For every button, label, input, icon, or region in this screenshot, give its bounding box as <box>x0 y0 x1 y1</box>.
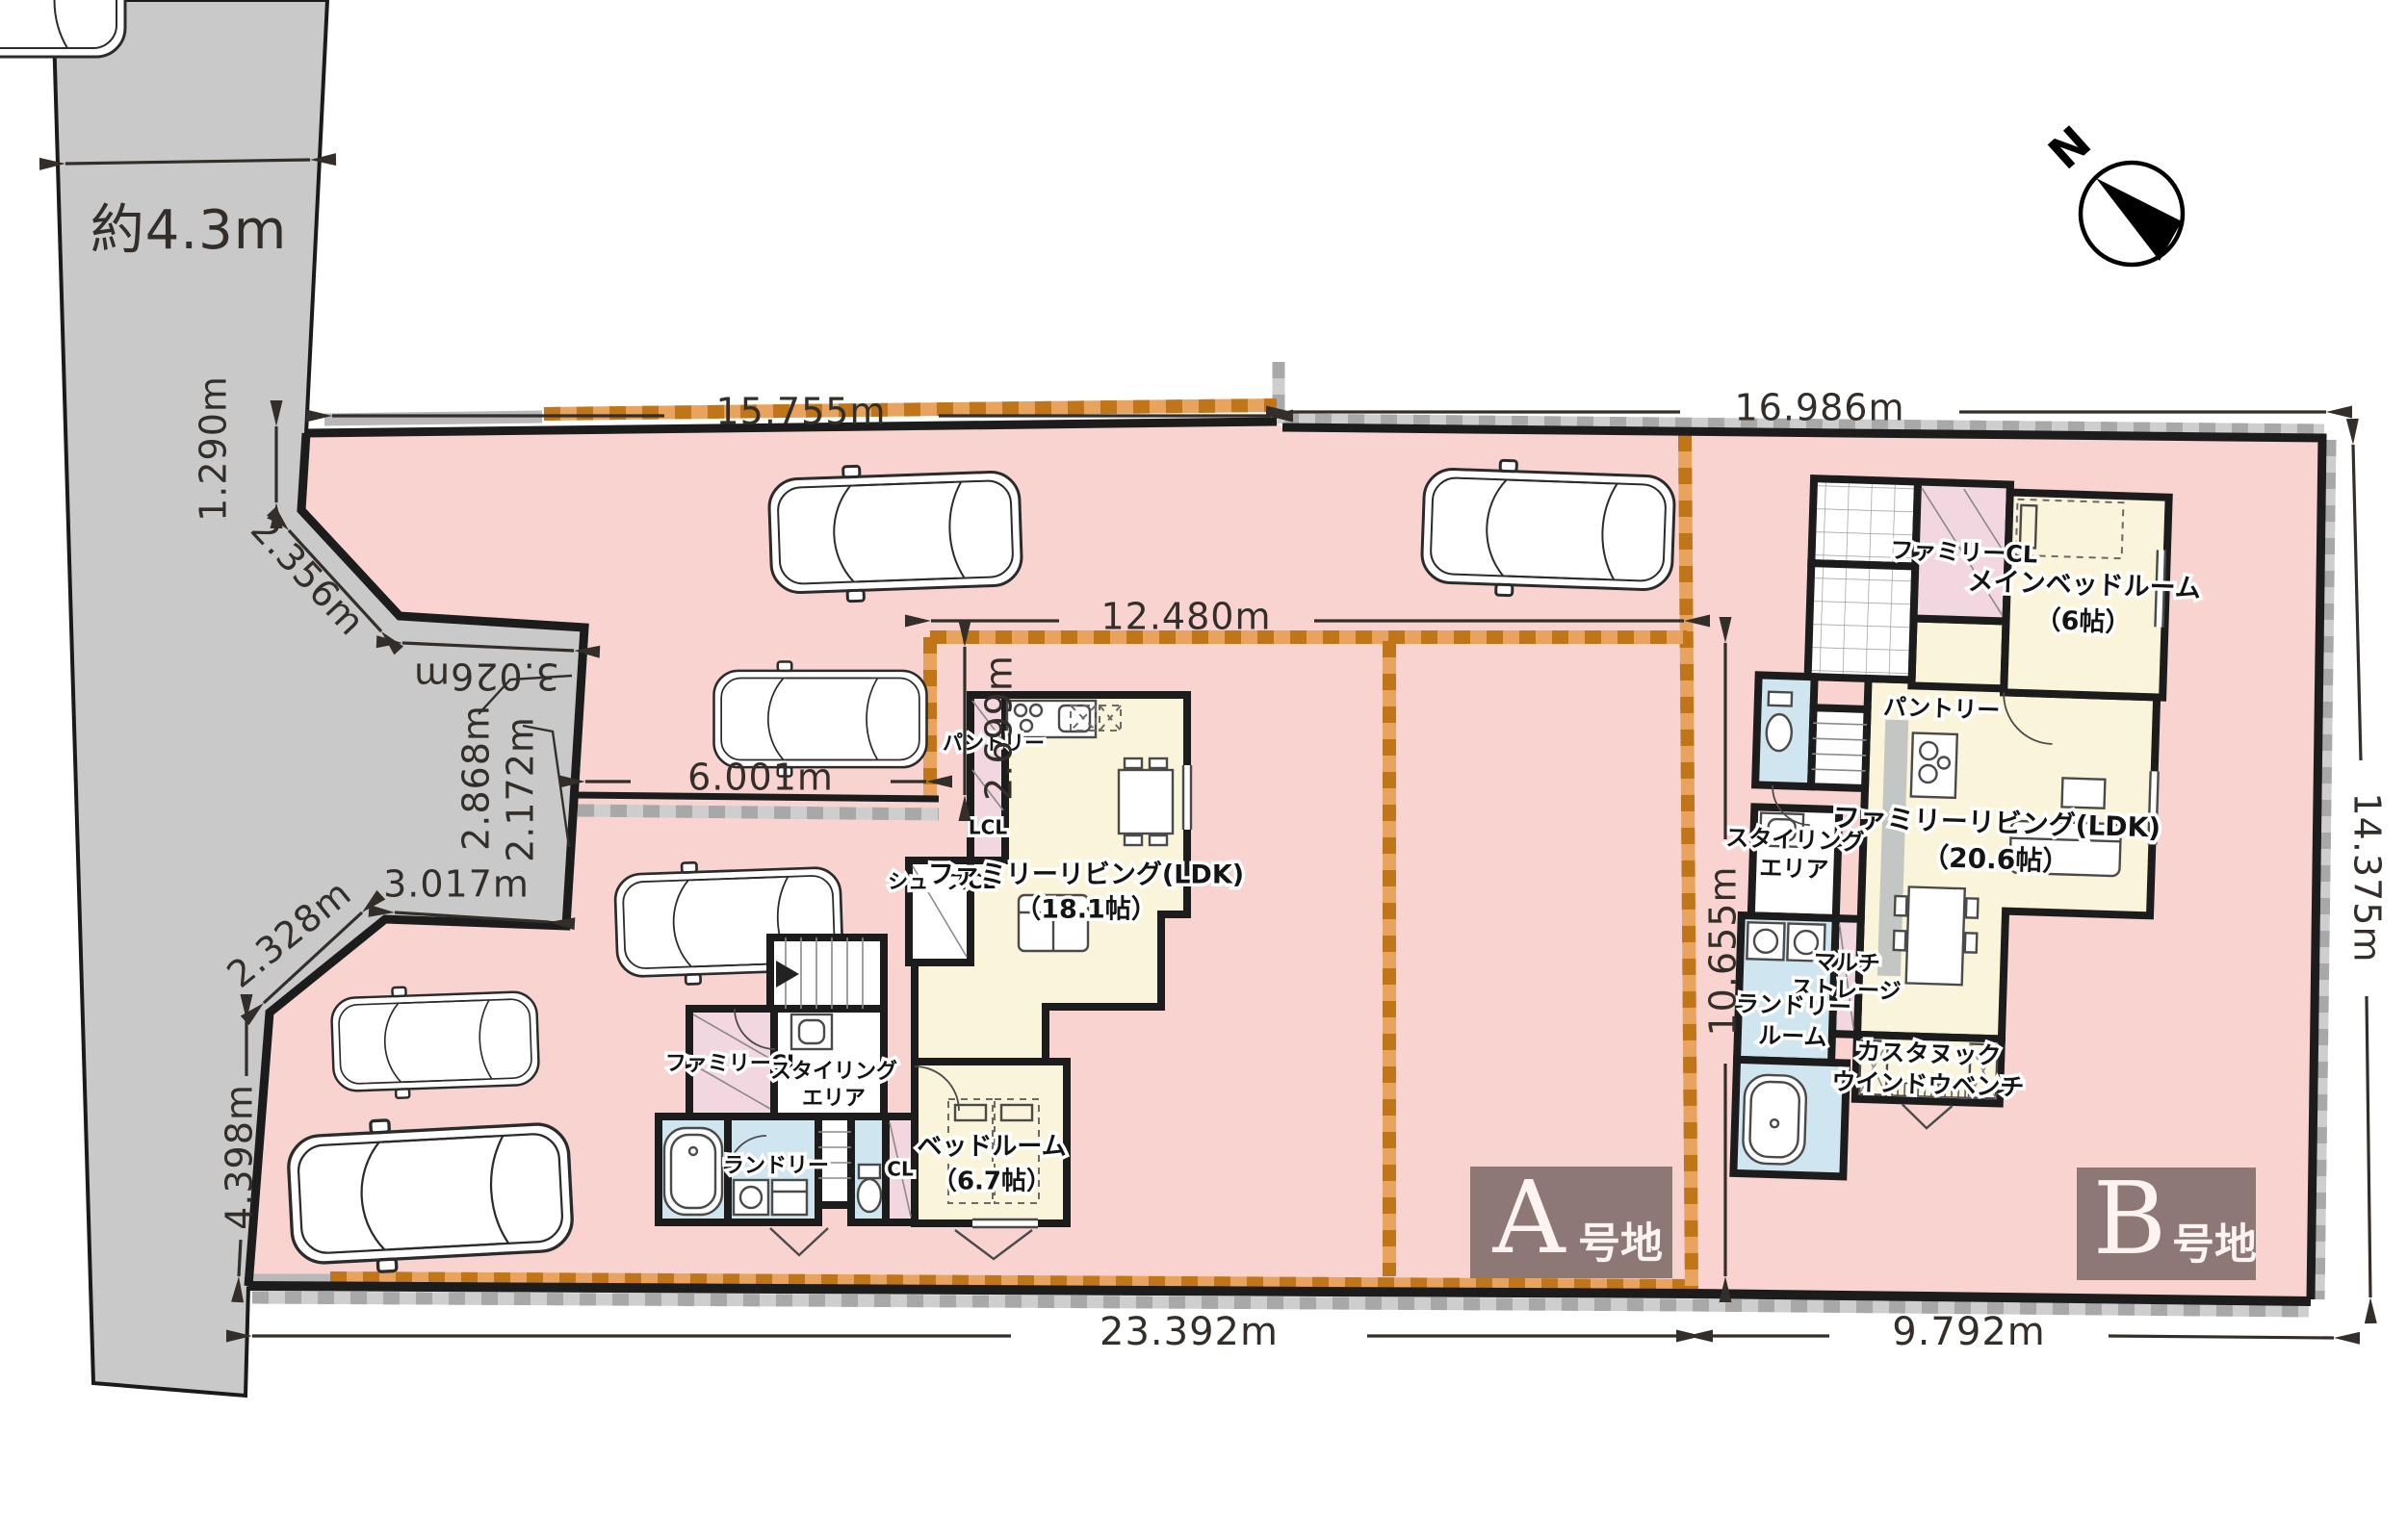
lot-label-b: B 号地 <box>2077 1160 2257 1280</box>
lot-a-letter: A <box>1491 1159 1566 1276</box>
toilet-b <box>1766 692 1793 752</box>
dim-left-1: 1.290m <box>193 375 235 522</box>
room-label-cl-a: CL <box>887 1158 914 1181</box>
car-icon <box>330 983 539 1100</box>
lot-a-suffix: 号地 <box>1578 1219 1663 1269</box>
lot-label-a: A 号地 <box>1470 1159 1672 1278</box>
dim-driveway: 6.001m <box>687 757 834 799</box>
bathtub-a <box>664 1128 722 1215</box>
toilet-a <box>858 1165 881 1212</box>
room-label-laundry-a: ランドリー <box>723 1154 829 1178</box>
road-width-label: 約4.3m <box>91 199 288 262</box>
car-icon <box>1421 458 1676 602</box>
dim-left-6: 3.017m <box>383 863 530 906</box>
room-label-ldk-a: ファミリーリビング(LDK) <box>928 860 1244 890</box>
dim-bottom-b: 9.792m <box>1892 1310 2045 1354</box>
dining-table-a <box>1119 758 1173 845</box>
lot-b-suffix: 号地 <box>2172 1220 2257 1270</box>
room-label-bedroom-a: ベッドルーム <box>917 1133 1066 1162</box>
room-label-styling-a: スタイリング <box>770 1059 897 1084</box>
dim-left-8: 4.398m <box>219 1084 261 1230</box>
room-label-ldk-a-size: （18.1帖） <box>1015 895 1157 925</box>
car-icon <box>286 1111 574 1276</box>
bathtub-b <box>1743 1074 1807 1165</box>
dim-inner-a-height: 10.655m <box>1702 866 1745 1037</box>
north-compass-icon: N <box>2038 115 2183 265</box>
lot-b-letter: B <box>2093 1160 2166 1277</box>
room-label-familycl-b: ファミリーCL <box>1890 537 2038 569</box>
room-label-multistorage-b: マルチ <box>1813 950 1880 977</box>
dim-top-a: 15.755m <box>716 391 887 433</box>
dim-b-right: 14.375m <box>2346 793 2389 963</box>
room-label-mainbedroom-b-size: （6帖） <box>2034 605 2132 638</box>
room-label-lcl-a: LCL <box>969 816 1007 839</box>
dim-left-5: 2.172m <box>500 716 542 862</box>
washbasin-a <box>791 1014 832 1049</box>
car-icon <box>768 461 1023 604</box>
room-label-pantry-b: パントリー <box>1883 694 2001 725</box>
compass-n-label: N <box>2038 115 2101 179</box>
room-label-laundry-b-2: ルーム <box>1758 1022 1827 1051</box>
dim-left-3: 3.026m <box>413 655 559 698</box>
room-label-laundry-b: ランドリー <box>1735 990 1851 1021</box>
dim-bottom-a: 23.392m <box>1100 1310 1279 1354</box>
room-label-styling-a-2: エリア <box>802 1087 866 1111</box>
site-plan-page: 約4.3m <box>0 0 2407 1540</box>
room-label-ldk-b-size: （20.6帖） <box>1922 841 2070 878</box>
dim-left-4: 2.868m <box>455 705 498 851</box>
room-label-nook-b: カスタヌック <box>1856 1038 2002 1070</box>
dim-inner-a-offset: 2.699m <box>978 654 1021 801</box>
room-label-bedroom-a-size: （6.7帖） <box>932 1168 1051 1196</box>
room-label-styling-b-2: エリア <box>1759 855 1829 884</box>
dim-inner-a-width: 12.480m <box>1101 596 1272 638</box>
dim-top-b: 16.986m <box>1735 387 1905 429</box>
